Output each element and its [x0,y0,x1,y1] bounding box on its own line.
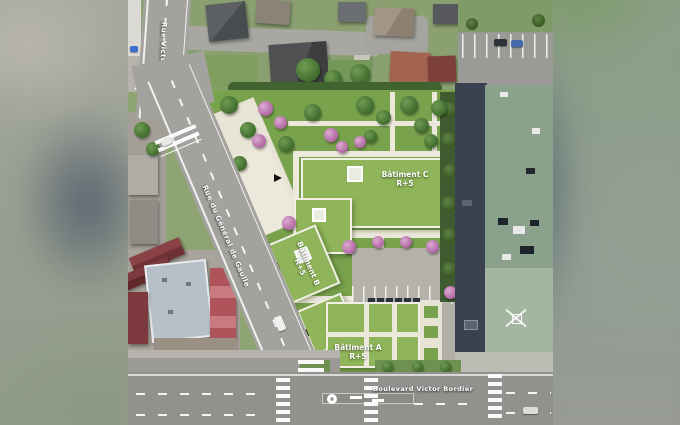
lane-dashes [414,403,476,405]
rooftop-unit [502,254,511,260]
parking-stripes [462,34,553,58]
batiment-a-path [326,332,420,337]
garden-path [298,151,462,157]
bush [466,18,478,30]
roof-vent [186,282,191,286]
flowering-tree [342,240,356,254]
lane-dashes [136,414,268,416]
flowering-tree [274,116,287,129]
warehouse-roof [144,259,214,343]
tree [356,96,374,114]
planter [424,306,438,318]
flowering-tree [426,240,439,253]
street-name: Boulevard Victor Bordier [373,385,473,393]
lane-dashes [506,392,551,394]
roof-vent [168,310,173,314]
tree [278,136,294,152]
city-roof [128,155,158,195]
roof-vent [162,278,167,282]
crosswalk [488,374,502,418]
tree [134,122,150,138]
street-label-boulevard-victor-bordier: Boulevard Victor Bordier [373,385,473,393]
car [494,39,507,46]
flowering-tree [324,128,338,142]
tree [220,96,238,114]
flowering-tree [372,236,384,248]
tree [382,361,393,372]
car [130,46,138,52]
rooftop-feature [312,208,326,222]
flowering-tree [282,216,296,230]
flowering-tree [258,101,273,116]
rooftop-unit [513,226,525,234]
aerial-photo: Bâtiment C R+5 Bâtiment B R+5 Bâtiment A… [128,0,553,425]
entrance-arrow-marker [274,174,282,182]
tree [440,361,451,372]
bush [532,14,545,27]
rooftop-feature [347,166,363,182]
blurred-right-fill [553,0,680,425]
batiment-c-name: Bâtiment C [382,170,429,179]
tree [304,104,321,121]
flowering-tree [252,134,266,148]
service-lane-mark [462,200,472,206]
house-roof [433,4,459,24]
tree [296,58,320,82]
rooftop-x-marking [504,306,528,330]
mini-roundabout-marking [327,394,337,404]
tree [412,361,423,372]
rooftop-unit [532,128,540,134]
rooftop-unit [530,220,539,226]
garden-path [288,121,464,126]
flowering-tree [400,236,412,248]
tree [424,134,438,148]
tree [376,110,391,125]
city-roof [128,292,148,344]
flowering-tree [336,141,348,153]
batiment-a-name: Bâtiment A [334,343,381,352]
house-roof [205,1,249,42]
crosswalk [276,378,290,424]
tree [350,64,370,84]
house-roof [389,51,431,85]
house-roof [255,0,291,25]
house-roof [374,7,415,36]
tree [400,96,418,114]
crosswalk [298,360,324,373]
city-roof [130,200,158,244]
batiment-a-height: R+5 [349,352,366,361]
batiment-c-label: Bâtiment C R+5 [375,170,435,189]
garden-path [390,92,395,156]
flowering-tree [354,136,366,148]
house-roof [338,2,366,22]
rooftop-unit [520,246,534,254]
rooftop-unit [526,168,535,174]
planter [424,326,438,338]
aerial-site-plan-image: Bâtiment C R+5 Bâtiment B R+5 Bâtiment A… [0,0,680,425]
blurred-left-fill [0,0,128,425]
turn-arrow-marking [350,396,362,399]
tree [431,100,447,116]
car [523,407,538,414]
service-lane-mark [464,320,478,330]
batiment-c-height: R+5 [396,179,413,188]
rooftop-unit [500,92,508,97]
rooftop-unit [498,218,508,225]
house-roof [428,56,457,83]
car [511,40,523,47]
pavement [455,352,553,374]
tree [414,118,429,133]
lane-dashes [136,393,268,395]
